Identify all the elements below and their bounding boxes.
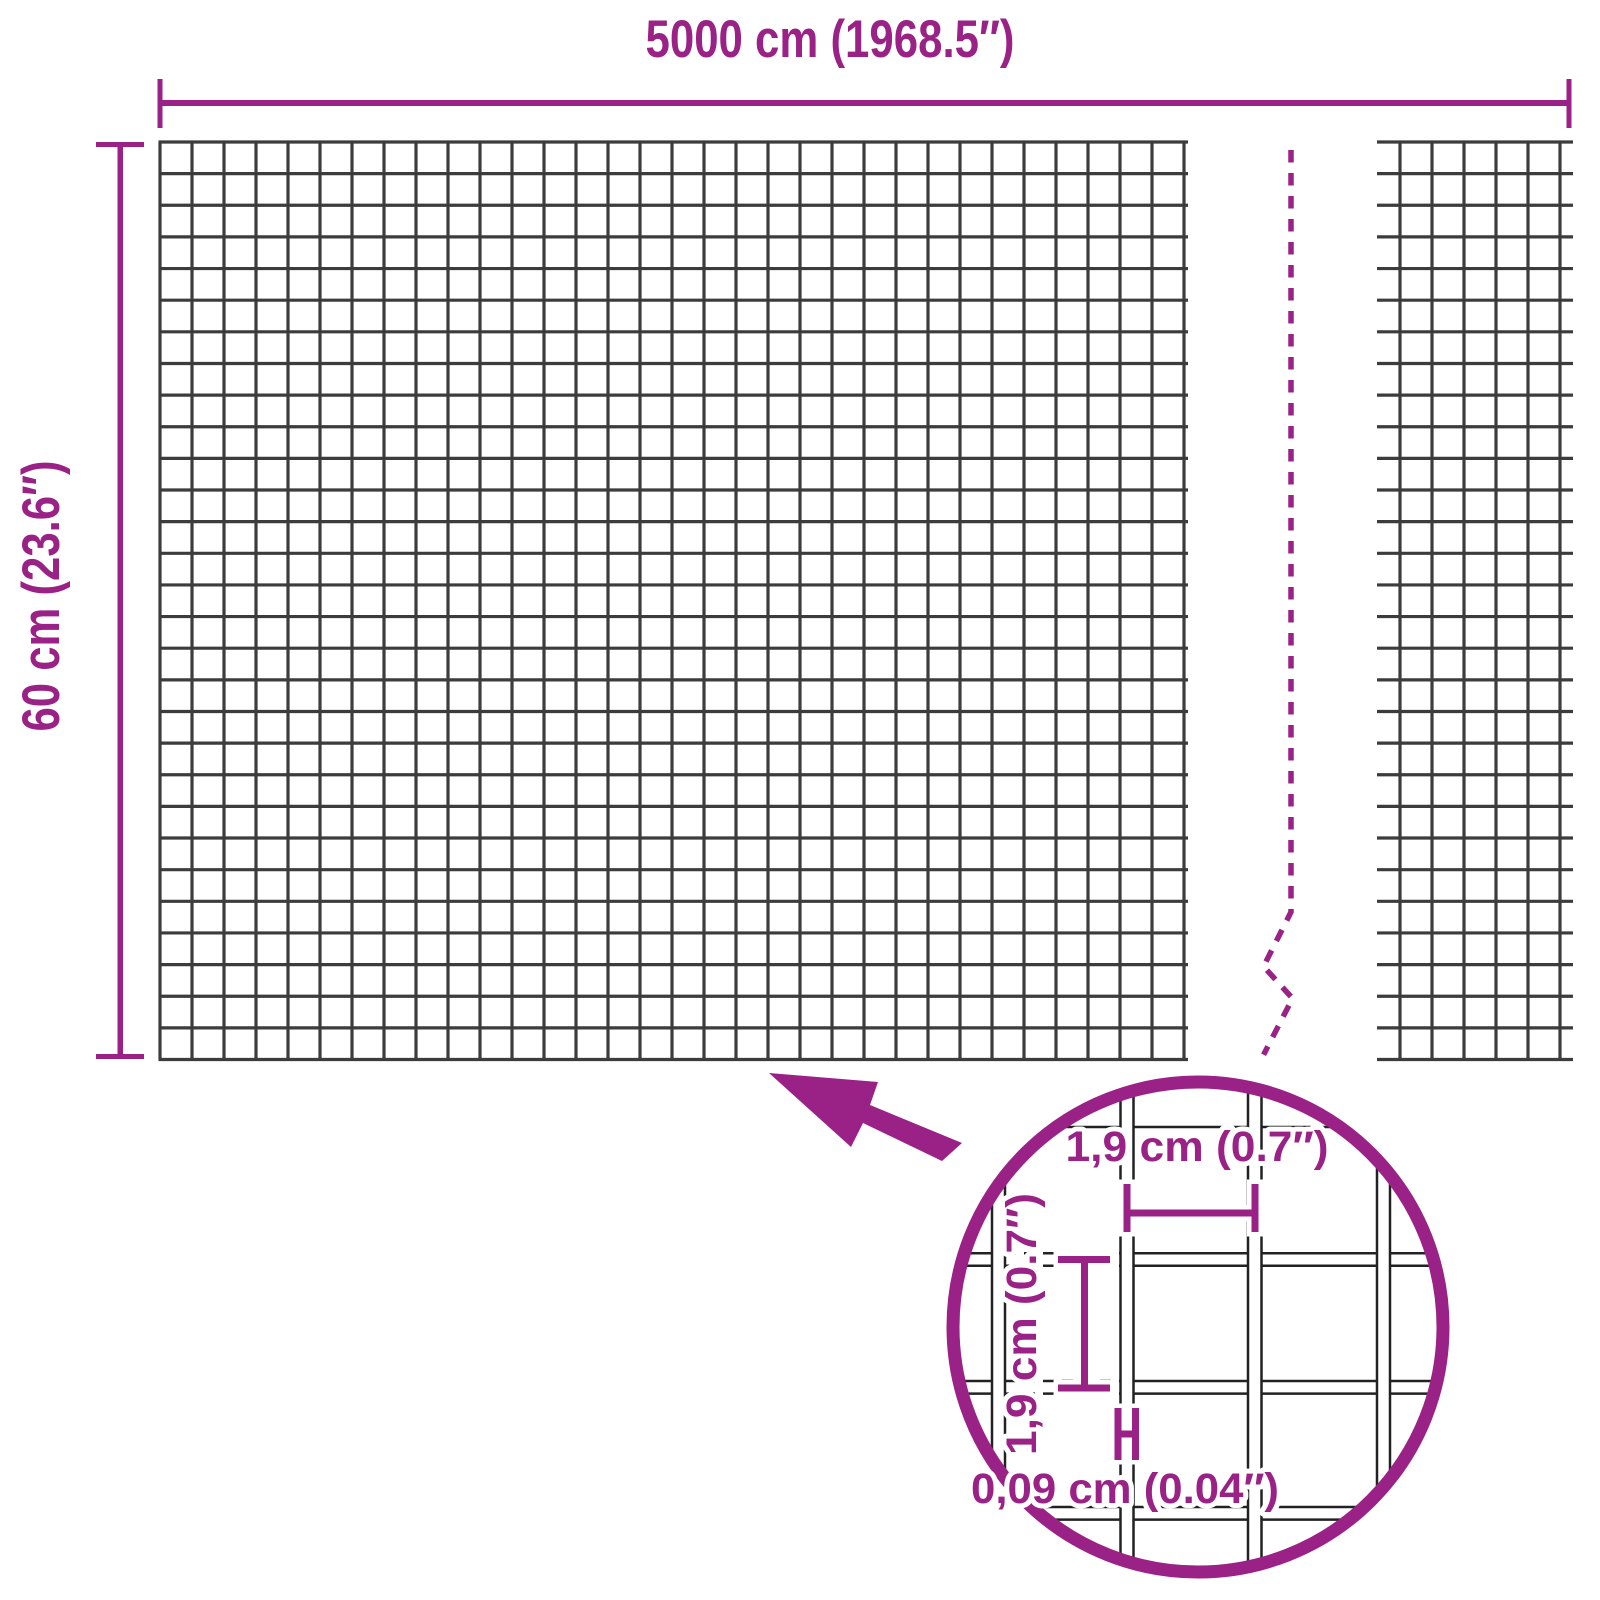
svg-text:1,9 cm (0.7″): 1,9 cm (0.7″) [1066,1123,1329,1171]
svg-text:1,9 cm (0.7″): 1,9 cm (0.7″) [998,1193,1046,1455]
svg-text:0,09 cm (0.04″): 0,09 cm (0.04″) [971,1465,1279,1513]
svg-text:5000 cm (1968.5″): 5000 cm (1968.5″) [646,10,1015,69]
svg-text:60 cm (23.6″): 60 cm (23.6″) [12,461,71,732]
